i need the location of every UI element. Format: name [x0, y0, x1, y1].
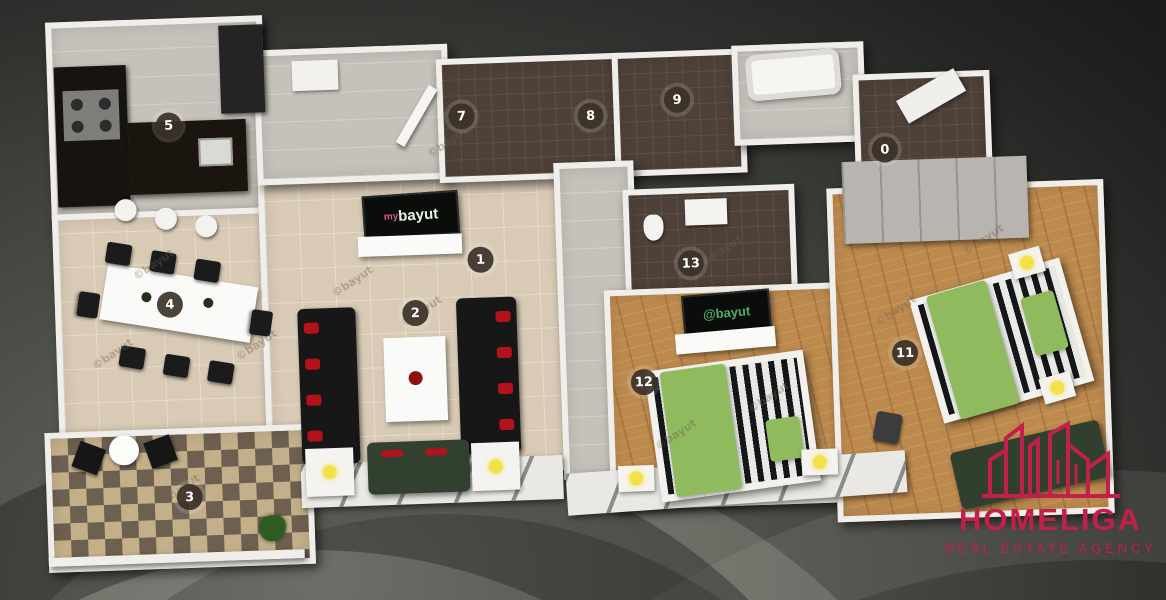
dining-chair — [105, 242, 133, 267]
badge-label: 0 — [880, 142, 890, 157]
nightstand-lamp — [1018, 254, 1035, 271]
dining-chair — [118, 345, 146, 370]
sofa-pillow — [381, 450, 403, 458]
bedroom-wardrobe — [841, 156, 1029, 244]
badge-label: 7 — [457, 109, 467, 124]
dining-chair — [249, 309, 273, 337]
tv-brand-name: bayut — [398, 205, 439, 225]
dining-chair — [193, 258, 221, 283]
bed-blanket — [659, 364, 742, 498]
sofa-left — [297, 307, 360, 465]
badge-label: 12 — [635, 374, 654, 390]
dining-chair — [163, 354, 191, 379]
bathroom-sink — [685, 198, 728, 225]
badge-label: 3 — [185, 489, 195, 504]
nightstand — [618, 465, 655, 492]
bed-blanket — [926, 280, 1021, 420]
sofa-pillow — [305, 358, 320, 370]
nightstand-lamp — [813, 455, 827, 469]
badge-label: 8 — [586, 108, 596, 123]
tv-brand-prefix: my — [383, 211, 398, 223]
sofa-pillow — [304, 322, 319, 334]
desk-chair — [872, 411, 903, 445]
badge-label: 11 — [896, 345, 915, 361]
dining-chair — [76, 291, 100, 319]
sofa-pillow — [498, 383, 513, 395]
sofa-right — [456, 297, 521, 455]
agency-tagline: REAL ESTATE AGENCY — [944, 541, 1156, 556]
sofa-pillow — [499, 419, 514, 431]
sofa-pillow — [495, 311, 510, 323]
badge-label: 13 — [681, 256, 700, 272]
kitchen-cabinet — [218, 24, 265, 113]
dining-chair — [207, 360, 235, 385]
agency-name: HOMELIGA — [959, 502, 1142, 538]
nightstand-lamp — [629, 471, 643, 485]
badge-label: 2 — [411, 305, 421, 320]
bed-pillow-green — [1020, 290, 1069, 357]
side-table — [471, 442, 521, 492]
side-table — [305, 447, 355, 497]
sofa-pillow — [307, 430, 322, 442]
tv-brand-name: @bayut — [702, 303, 750, 322]
table-centerpiece — [203, 297, 214, 308]
living-room-tv: mybayut — [362, 190, 461, 241]
badge-label: 4 — [165, 297, 175, 312]
tv-console — [358, 233, 463, 257]
agency-logo: HOMELIGA REAL ESTATE AGENCY — [938, 420, 1163, 580]
badge-label: 1 — [476, 252, 486, 267]
sofa-pillow — [425, 448, 447, 456]
kitchen-island — [128, 119, 248, 195]
agency-logo-building-icon — [976, 420, 1126, 500]
stove-burner — [71, 121, 83, 133]
bathtub — [744, 48, 842, 102]
kitchen-stove — [62, 89, 120, 141]
bed-pillow-green — [765, 416, 805, 462]
stove-burner — [99, 98, 111, 110]
coffee-table — [383, 336, 448, 422]
table-lamp — [323, 465, 337, 479]
nightstand — [801, 448, 838, 475]
dining-chair — [149, 250, 177, 275]
sofa-green — [367, 439, 471, 495]
stove-burner — [99, 120, 111, 132]
badge-label: 5 — [164, 118, 174, 133]
coffee-table-flowers — [408, 371, 422, 385]
bathroom-sink — [292, 60, 339, 92]
table-centerpiece — [141, 291, 152, 302]
room-storage — [611, 48, 747, 177]
bed-12 — [644, 350, 821, 503]
badge-label: 9 — [672, 92, 682, 107]
table-lamp — [489, 459, 503, 473]
nightstand-lamp — [1049, 379, 1066, 396]
sofa-pillow — [306, 394, 321, 406]
sofa-pillow — [497, 347, 512, 359]
kitchen-sink — [198, 137, 233, 166]
stove-burner — [71, 99, 83, 111]
